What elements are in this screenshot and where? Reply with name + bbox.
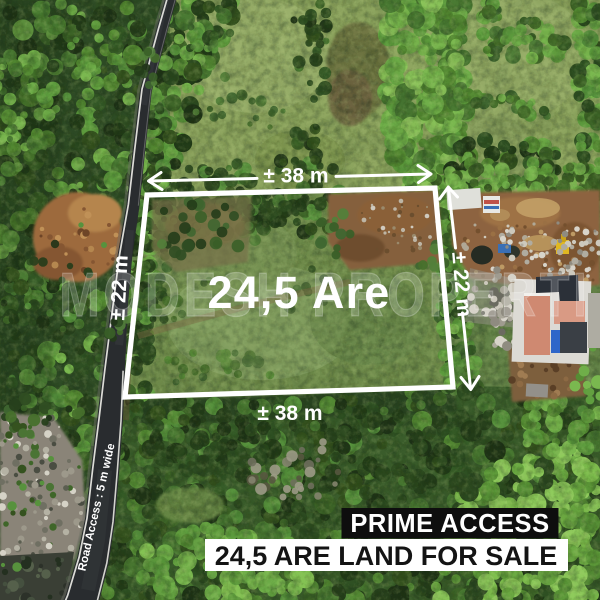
svg-text:± 38 m: ± 38 m bbox=[263, 165, 328, 188]
svg-text:± 38 m: ± 38 m bbox=[257, 402, 322, 425]
svg-text:24,5 Are: 24,5 Are bbox=[207, 267, 390, 318]
svg-text:± 22 m: ± 22 m bbox=[106, 254, 132, 320]
svg-text:PRIME ACCESS: PRIME ACCESS bbox=[350, 510, 549, 538]
svg-text:24,5 ARE LAND FOR SALE: 24,5 ARE LAND FOR SALE bbox=[215, 541, 558, 571]
